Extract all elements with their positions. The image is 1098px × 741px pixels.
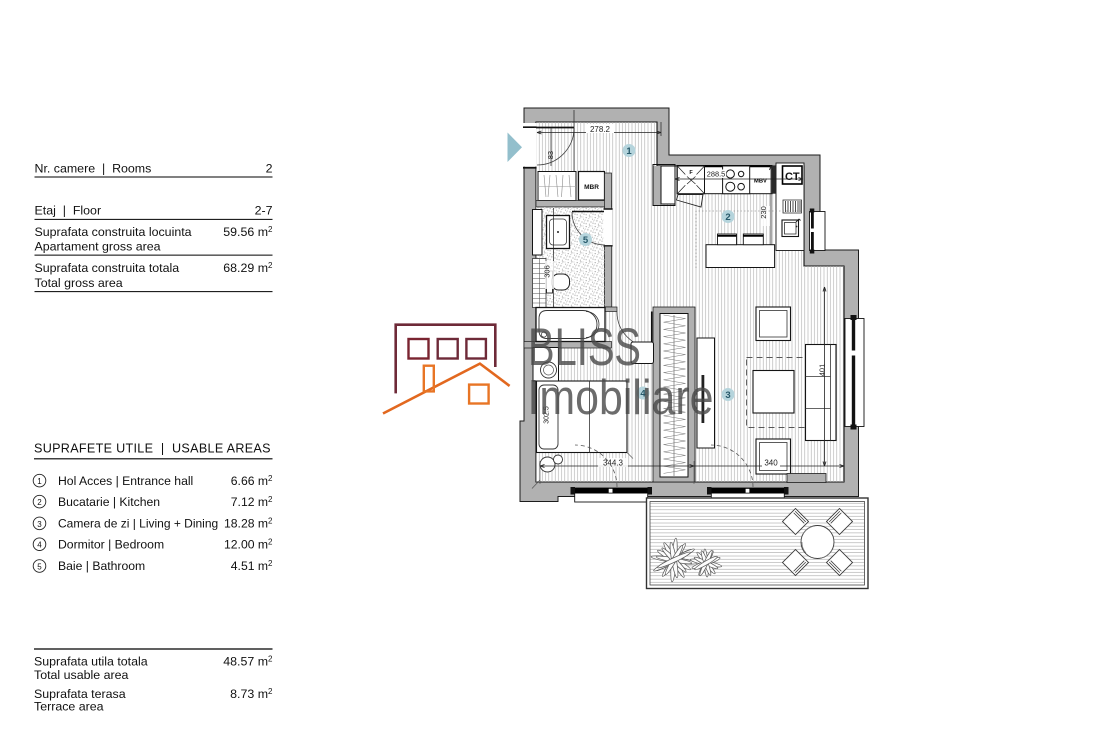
svg-text:83: 83 (546, 151, 555, 159)
svg-text:7.12 m2: 7.12 m2 (231, 495, 273, 509)
svg-text:288.5: 288.5 (707, 169, 726, 178)
svg-text:230: 230 (759, 206, 768, 219)
svg-text:Imobiliare: Imobiliare (528, 371, 714, 425)
svg-text:4: 4 (37, 541, 42, 550)
svg-text:Total gross area: Total gross area (35, 276, 123, 290)
svg-text:Camera de zi | Living + Dining: Camera de zi | Living + Dining (58, 517, 218, 531)
svg-text:8.73 m2: 8.73 m2 (230, 687, 273, 701)
svg-text:48.57 m2: 48.57 m2 (223, 655, 273, 669)
svg-text:Suprafata construita totala: Suprafata construita totala (35, 261, 180, 275)
svg-text:344.3: 344.3 (603, 459, 624, 468)
svg-text:Hol Acces | Entrance hall: Hol Acces | Entrance hall (58, 474, 193, 488)
svg-text:2: 2 (37, 498, 42, 507)
svg-text:2: 2 (725, 212, 730, 223)
svg-text:6.66 m2: 6.66 m2 (231, 474, 273, 488)
svg-text:MBV: MBV (754, 179, 767, 185)
svg-text:18.28 m2: 18.28 m2 (224, 517, 273, 531)
svg-text:Bucatarie | Kitchen: Bucatarie | Kitchen (58, 495, 160, 509)
svg-text:4.51 m2: 4.51 m2 (231, 559, 273, 573)
svg-text:2: 2 (266, 162, 273, 176)
svg-text:5: 5 (583, 235, 589, 246)
svg-text:340: 340 (764, 459, 778, 468)
svg-text:Dormitor | Bedroom: Dormitor | Bedroom (58, 537, 164, 551)
svg-text:5: 5 (37, 562, 42, 571)
svg-text:Total usable area: Total usable area (34, 668, 128, 682)
svg-text:SUPRAFETE UTILE | USABLE ARE: SUPRAFETE UTILE | USABLE AREAS (34, 442, 271, 456)
svg-text:68.29 m2: 68.29 m2 (223, 261, 273, 275)
svg-text:Suprafata construita locuinta: Suprafata construita locuinta (35, 225, 192, 239)
svg-text:2-7: 2-7 (255, 204, 273, 218)
svg-text:Nr. camere | Rooms: Nr. camere | Rooms (35, 162, 152, 176)
svg-text:1: 1 (626, 146, 632, 157)
svg-text:401: 401 (818, 364, 827, 377)
svg-text:Apartament gross area: Apartament gross area (35, 240, 161, 254)
svg-text:Etaj | Floor: Etaj | Floor (35, 204, 102, 218)
svg-text:278.2: 278.2 (590, 125, 611, 134)
svg-text:12.00 m2: 12.00 m2 (224, 537, 273, 551)
svg-text:Terrace area: Terrace area (34, 700, 104, 714)
svg-text:MBR: MBR (584, 184, 599, 191)
svg-text:BLISS: BLISS (528, 318, 641, 377)
svg-text:306: 306 (543, 265, 552, 278)
svg-text:1: 1 (37, 477, 42, 486)
svg-text:59.56 m2: 59.56 m2 (223, 225, 273, 239)
svg-text:Baie | Bathroom: Baie | Bathroom (58, 559, 145, 573)
svg-text:3: 3 (37, 520, 42, 529)
svg-text:Suprafata utila totala: Suprafata utila totala (34, 655, 148, 669)
svg-text:CT: CT (785, 171, 800, 183)
svg-text:3: 3 (725, 390, 730, 401)
